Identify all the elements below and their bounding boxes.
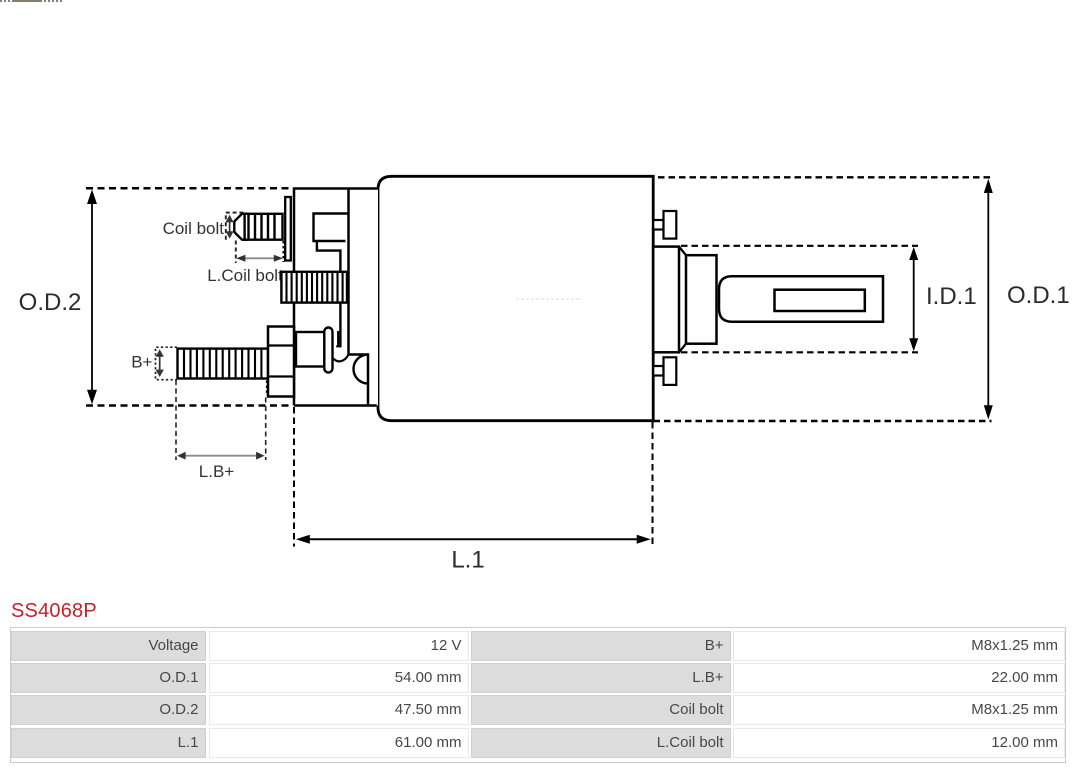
svg-text:L.1: L.1 xyxy=(451,547,484,574)
svg-text:O.D.2: O.D.2 xyxy=(19,289,82,316)
svg-text:L.Coil bolt: L.Coil bolt xyxy=(207,266,283,285)
svg-text:L.B+: L.B+ xyxy=(199,462,235,481)
svg-text:I.D.1: I.D.1 xyxy=(926,283,977,310)
svg-text:B+: B+ xyxy=(131,353,152,372)
svg-text:O.D.1: O.D.1 xyxy=(1007,282,1070,309)
svg-text:Coil bolt: Coil bolt xyxy=(163,219,225,238)
